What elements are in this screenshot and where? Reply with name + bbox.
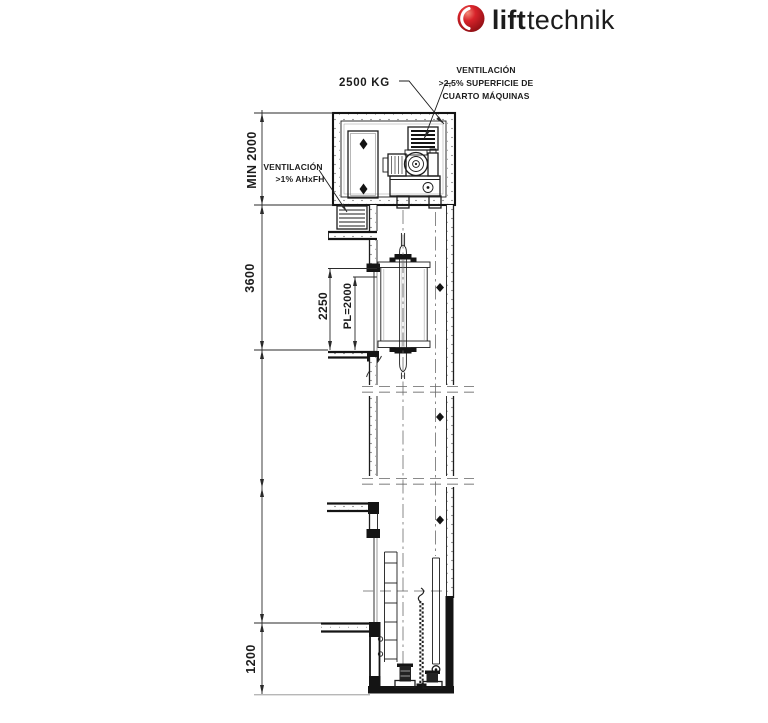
dimension-machine-room-height: MIN 2000 xyxy=(245,131,259,188)
elevator-section-drawing: lift technik xyxy=(0,0,768,723)
vent-mr-line1: VENTILACIÓN xyxy=(456,64,515,75)
dimension-3600: 3600 xyxy=(243,263,257,292)
dimension-pit-depth: 1200 xyxy=(244,644,258,673)
vent-mr-line2: >2,5% SUPERFICIE DE xyxy=(439,78,534,88)
load-label: 2500 KG xyxy=(339,77,390,89)
vent-shaft-line1: VENTILACIÓN xyxy=(263,161,322,172)
ventilation-grille xyxy=(408,127,438,150)
machine-room-door xyxy=(348,131,378,198)
door-dimensions: 2250 PL=2000 xyxy=(316,269,377,351)
door-handle-icon xyxy=(360,139,368,150)
drawing-page: lift technik xyxy=(0,0,768,723)
car-buffer xyxy=(395,664,415,688)
vent-shaft-line2: >1% AHxFH xyxy=(276,174,325,184)
pit-right-wall xyxy=(446,596,454,690)
machine-room-vent-louvre xyxy=(337,206,367,229)
landing-door-middle xyxy=(327,502,380,622)
pit-guide-rail xyxy=(432,558,440,673)
shaft-right-wall xyxy=(446,205,455,690)
logo-text-technik: technik xyxy=(527,5,615,35)
logo-text-lift: lift xyxy=(492,5,526,35)
landing-door-bottom xyxy=(321,622,381,688)
dimension-door-clear-height: PL=2000 xyxy=(342,283,354,329)
shaft-left-wall xyxy=(328,205,380,272)
lifttechnik-logo: lift technik xyxy=(458,5,615,35)
elevator-car xyxy=(378,233,430,379)
vent-mr-line3: CUARTO MÁQUINAS xyxy=(442,91,529,101)
door-handle-icon xyxy=(360,184,368,195)
pit-ladder xyxy=(378,552,397,662)
annotation-vent-machine-room: VENTILACIÓN >2,5% SUPERFICIE DE CUARTO M… xyxy=(424,64,534,139)
shaft-left-wall-lower xyxy=(369,357,377,476)
break-lines xyxy=(362,387,474,592)
guide-rail-brackets xyxy=(436,283,444,525)
dimension-door-structural-height: 2250 xyxy=(316,292,330,320)
